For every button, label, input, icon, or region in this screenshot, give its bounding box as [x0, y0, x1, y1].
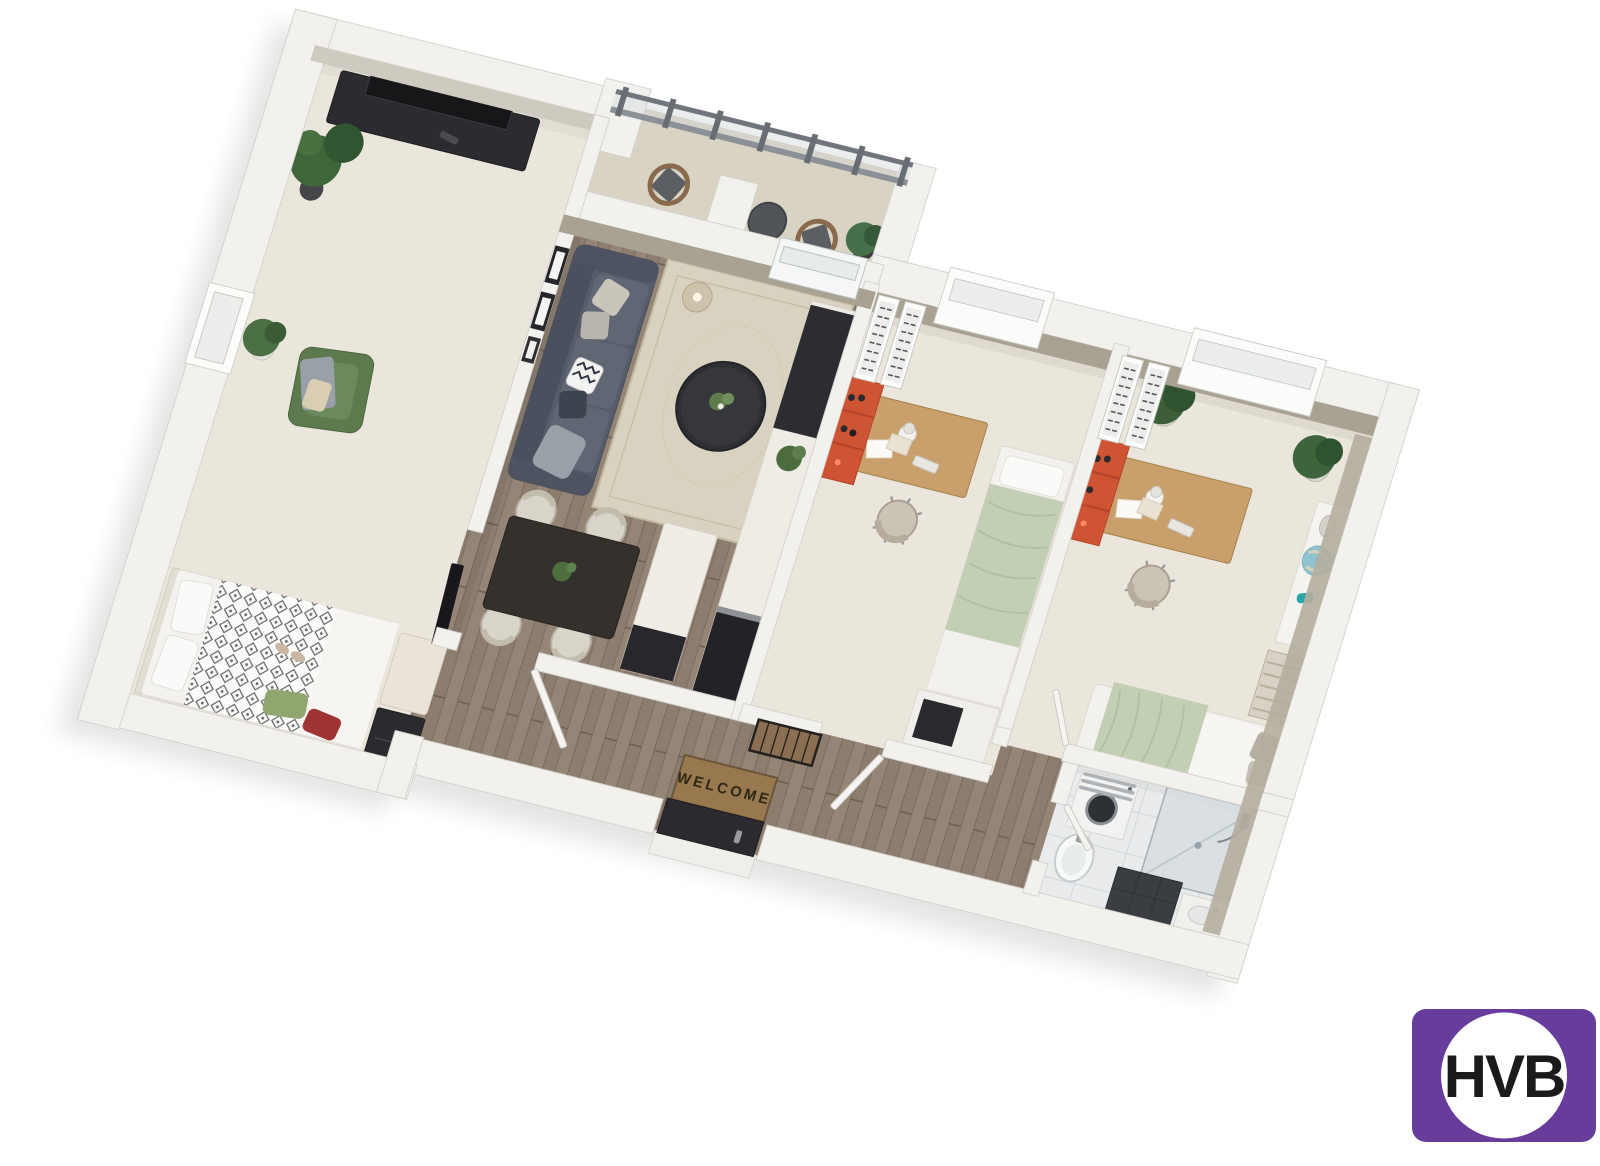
floor-plan-screenshot: WELCOME HVB [0, 0, 1600, 1166]
floor-plan-canvas: WELCOME HVB [0, 0, 1600, 1166]
sofa-pillow [580, 311, 610, 340]
hvb-logo: HVB [1412, 1009, 1596, 1142]
sofa-pillow-dark [558, 390, 587, 418]
green-armchair [286, 346, 375, 434]
logo-text: HVB [1444, 1043, 1565, 1110]
